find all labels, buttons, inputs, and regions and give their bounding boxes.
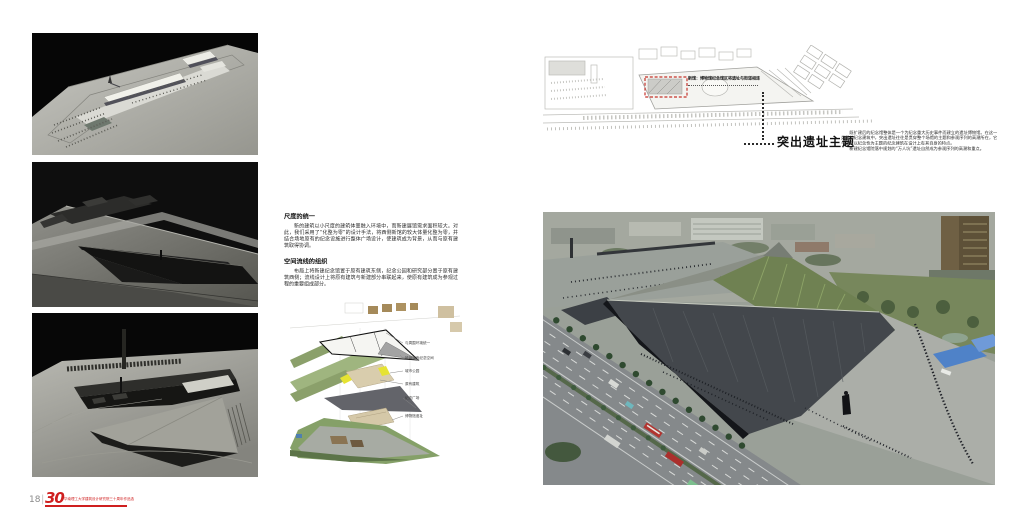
plan-callout-label: 新馆：博物馆纪念馆区将遗址与街道相连 <box>688 76 760 81</box>
footer-series-title: 华南理工大学建筑设计研究院三十周年作品选 <box>64 497 134 502</box>
leader-dotted-vertical <box>762 92 764 140</box>
axon-label-3: 城市公园 <box>405 368 420 373</box>
plan-callout-underline <box>688 85 758 86</box>
anniversary-logo: 30 <box>45 491 64 506</box>
site-theme-paragraph-1: 既扩建后的纪念馆整体是一个为纪念重大历史事件而建立的遗址博物馆。在这一类型的纪念… <box>841 130 997 146</box>
scale-section-body-wrap: 新的建筑以小尺度的建筑体量融入环境中，而新建展馆需求面积较大。对此，我们采用了“… <box>284 223 458 255</box>
axon-label-2: 延续原有纪念空间 <box>405 355 434 360</box>
plan-callout-wrap: 新馆：博物馆纪念馆区将遗址与街道相连 <box>688 76 868 89</box>
aerial-photo-image <box>543 212 995 485</box>
circulation-section-body: 布局上将新建纪念馆置于原有建筑东侧，纪念公园和研究部分置于原有建筑西侧；流线设计… <box>284 268 458 288</box>
footer-separator: | <box>41 494 44 505</box>
circulation-section-body-wrap: 布局上将新建纪念馆置于原有建筑东侧，纪念公园和研究部分置于原有建筑西侧；流线设计… <box>284 268 458 298</box>
axon-label-1: 与周围环境统一 <box>405 340 431 345</box>
model-photo-2-image <box>32 162 258 307</box>
site-plan-drawing <box>543 45 883 137</box>
axon-label-5: 纪念广场 <box>405 395 420 400</box>
site-plan-image <box>543 45 883 137</box>
scale-section-heading: 尺度的统一 <box>284 213 315 221</box>
model-photo-3-image <box>32 313 258 477</box>
site-theme-body: 既扩建后的纪念馆整体是一个为纪念重大历史事件而建立的遗址博物馆。在这一类型的纪念… <box>841 130 997 152</box>
model-photo-1 <box>32 33 258 155</box>
exploded-axon-image: 与周围环境统一 延续原有纪念空间 城市公园 原有建筑 纪念广场 博物馆遗址 <box>290 298 466 470</box>
model-photo-2 <box>32 162 258 307</box>
axon-label-4: 原有建筑 <box>405 381 420 386</box>
leader-dotted-horizontal <box>744 143 774 145</box>
circulation-section-paragraph: 布局上将新建纪念馆置于原有建筑东侧，纪念公园和研究部分置于原有建筑西侧；流线设计… <box>284 268 458 288</box>
axon-label-6: 博物馆遗址 <box>405 413 423 418</box>
model-photo-3 <box>32 313 258 477</box>
scale-section-paragraph: 新的建筑以小尺度的建筑体量融入环境中，而新建展馆需求面积较大。对此，我们采用了“… <box>284 223 458 249</box>
footer-series-title-wrap: 华南理工大学建筑设计研究院三十周年作品选 <box>64 497 264 510</box>
site-theme-paragraph-2: 新建纪念馆院落中规划的“万人坑”遗址自然成为参观序列的高潮和重点。 <box>841 146 997 151</box>
exploded-axon-diagram: 与周围环境统一 延续原有纪念空间 城市公园 原有建筑 纪念广场 博物馆遗址 <box>290 298 466 470</box>
book-spread-page: 尺度的统一 新的建筑以小尺度的建筑体量融入环境中，而新建展馆需求面积较大。对此，… <box>0 0 1024 512</box>
scale-section-body: 新的建筑以小尺度的建筑体量融入环境中，而新建展馆需求面积较大。对此，我们采用了“… <box>284 223 458 249</box>
aerial-photo <box>543 212 995 485</box>
footer-red-rule <box>45 505 127 507</box>
model-photo-1-image <box>32 33 258 155</box>
circulation-section-heading: 空间流线的组织 <box>284 258 327 266</box>
page-number: 18 <box>29 495 40 505</box>
site-theme-body-wrap: 既扩建后的纪念馆整体是一个为纪念重大历史事件而建立的遗址博物馆。在这一类型的纪念… <box>841 130 999 164</box>
